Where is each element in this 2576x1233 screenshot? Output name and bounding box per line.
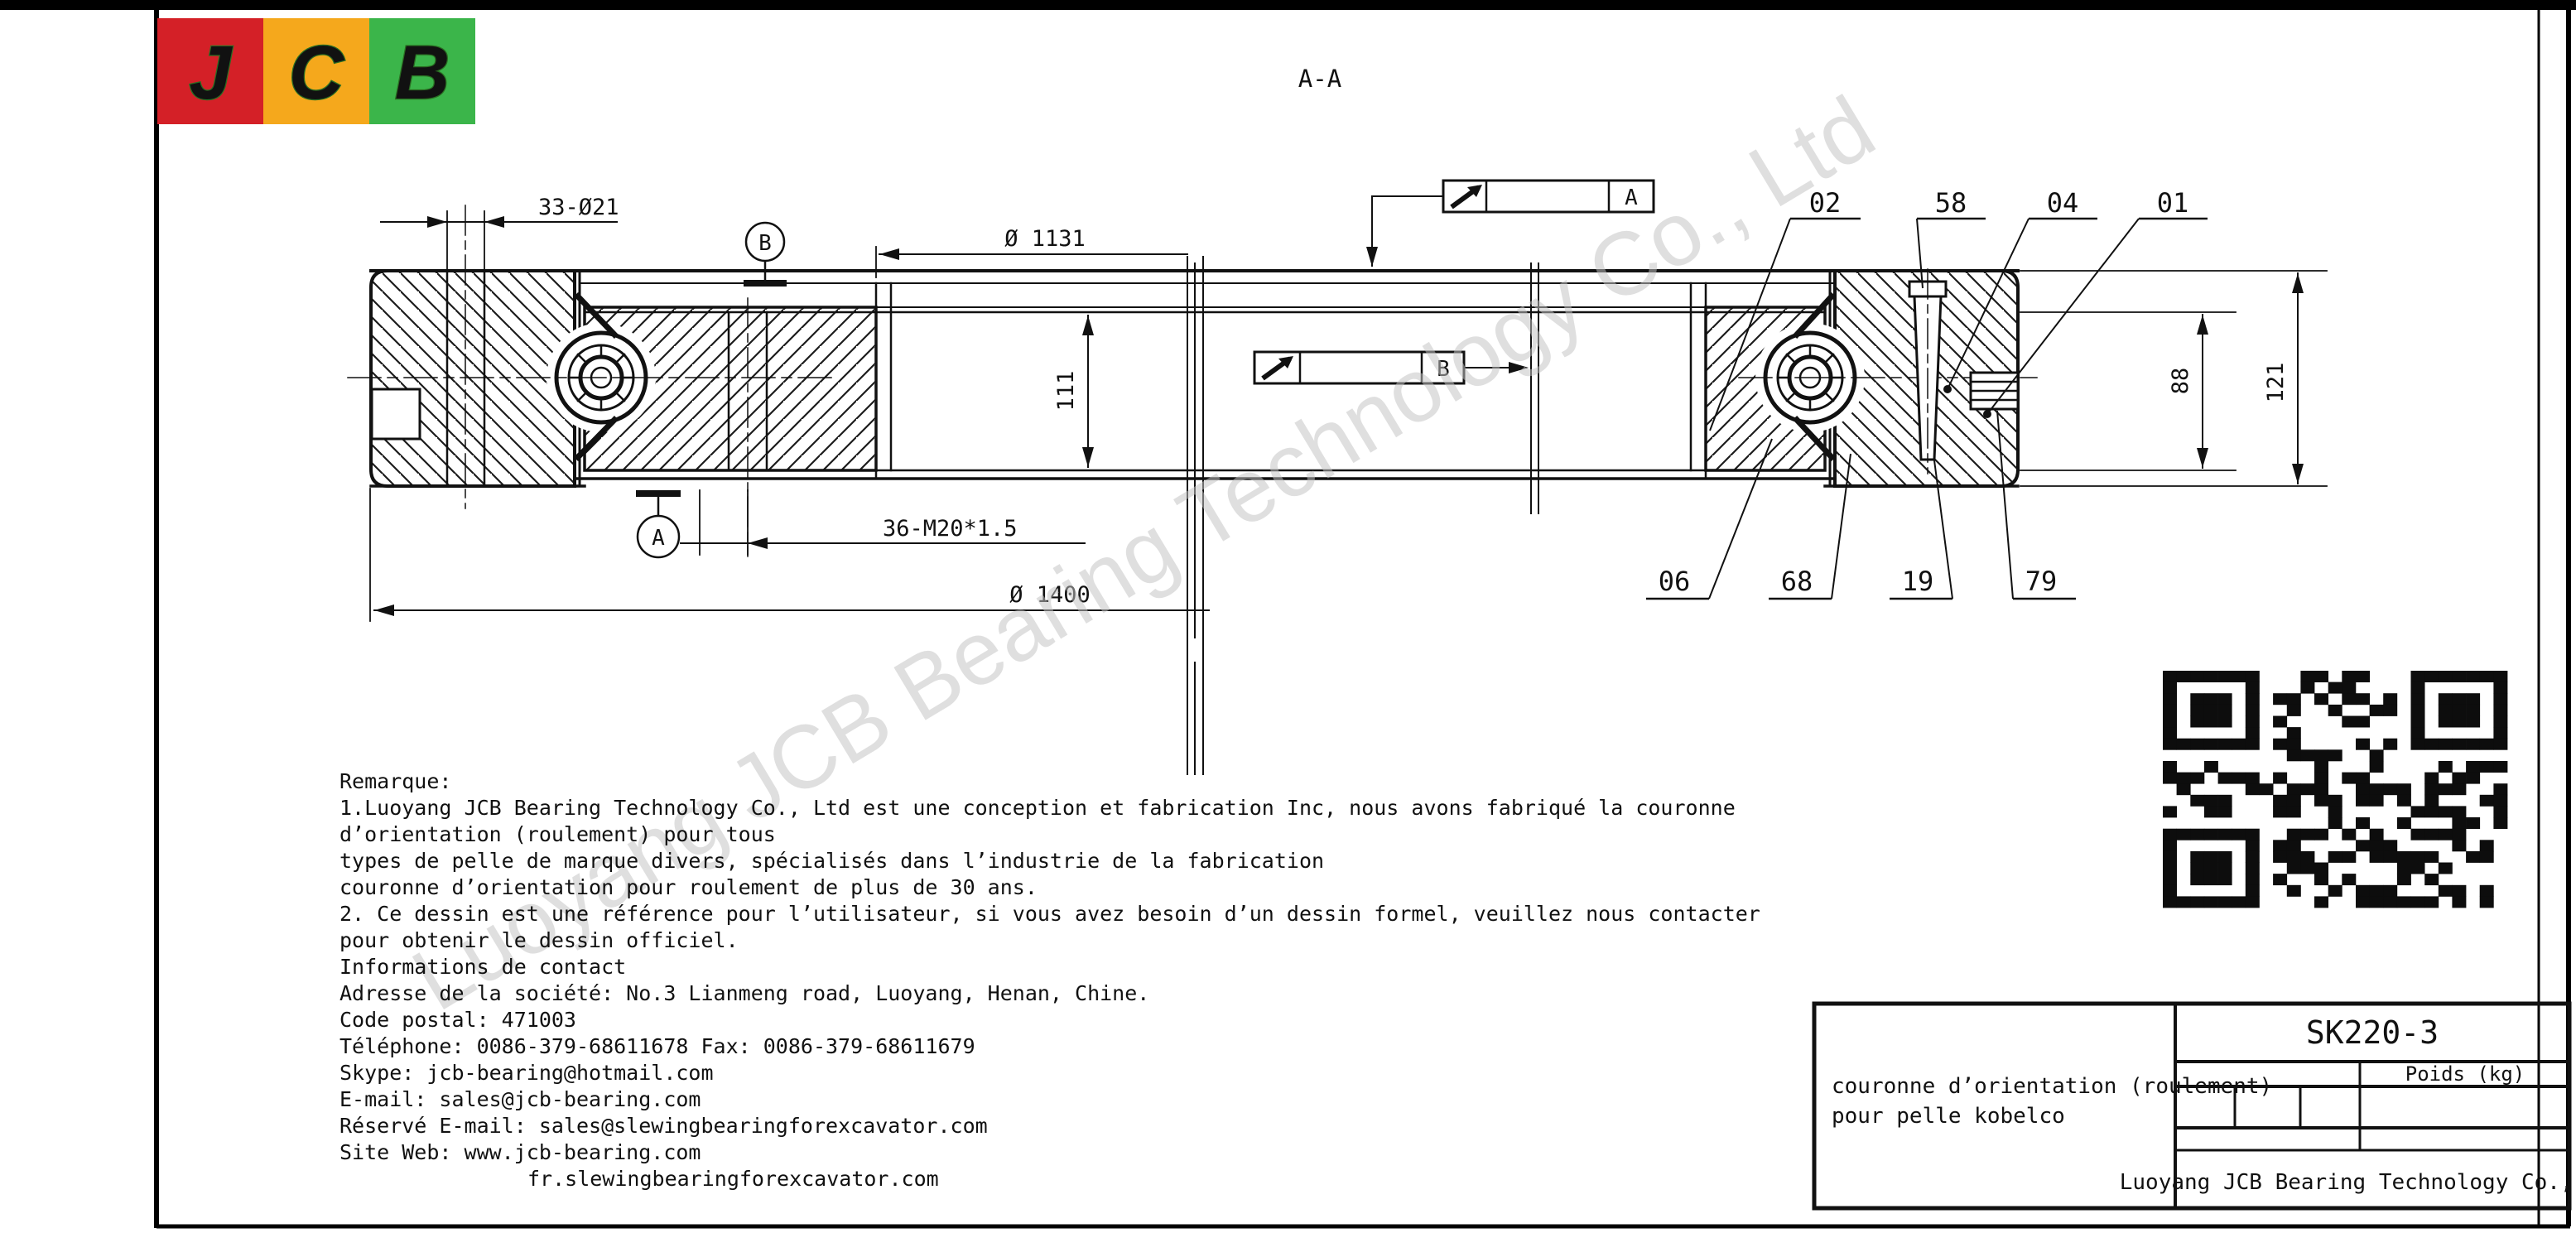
jcb-logo: J C B [157, 18, 475, 124]
note-line-10: Code postal: 471003 [339, 1008, 576, 1032]
callout-79: 79 [2025, 566, 2058, 597]
note-line-9: Adresse de la société: No.3 Lianmeng roa… [339, 981, 1149, 1005]
callout-68: 68 [1781, 566, 1813, 597]
callout-01: 01 [2157, 187, 2189, 219]
company-name: Luoyang JCB Bearing Technology Co., Ltd [2120, 1170, 2576, 1195]
note-line-14: Réservé E-mail: sales@slewingbearingfore… [339, 1114, 988, 1138]
callout-19: 19 [1902, 566, 1934, 597]
title-block: SK220-3 Poids (kg) couronne d’orientatio… [1814, 1004, 2576, 1208]
dim-label-111: 111 [1053, 371, 1079, 412]
note-line-4: types de pelle de marque divers, spécial… [339, 849, 1324, 873]
dim-inner-ring-height: 88 [2020, 312, 2236, 470]
border-top-bar [0, 0, 2576, 10]
note-line-7: pour obtenir le dessin officiel. [339, 928, 739, 952]
note-line-1: Remarque: [339, 769, 451, 793]
datum-b: B [744, 223, 787, 287]
datum-b-label: B [758, 231, 772, 256]
note-line-11: Téléphone: 0086-379-68611678 Fax: 0086-3… [339, 1034, 975, 1058]
logo-letter-c: C [289, 31, 345, 115]
left-outer-ring [371, 271, 575, 486]
dim-label-33-21: 33-Ø21 [538, 195, 619, 220]
notes-block: Remarque: 1.Luoyang JCB Bearing Technolo… [339, 769, 1760, 1191]
dim-bolt-pattern-top: 33-Ø21 [381, 195, 619, 273]
weight-label: Poids (kg) [2405, 1062, 2525, 1086]
note-line-6: 2. Ce dessin est une référence pour l’ut… [339, 902, 1760, 926]
dim-bore-height: 111 [1053, 315, 1094, 467]
qr-code [2163, 671, 2507, 908]
dim-label-121: 121 [2263, 363, 2289, 403]
note-line-15: Site Web: www.jcb-bearing.com [339, 1140, 701, 1164]
note-line-3: d’orientation (roulement) pour tous [339, 822, 776, 846]
dim-label-36-m20: 36-M20*1.5 [883, 516, 1018, 542]
section-label: A-A [1298, 65, 1341, 93]
datum-a: A [636, 490, 681, 557]
part-number: SK220-3 [2306, 1014, 2439, 1051]
callout-58: 58 [1935, 187, 1967, 219]
callout-04: 04 [2047, 187, 2079, 219]
note-line-8: Informations de contact [339, 955, 626, 979]
key-slot [372, 389, 420, 439]
note-line-5: couronne d’orientation pour roulement de… [339, 875, 1038, 899]
dim-label-1131: Ø 1131 [1004, 226, 1086, 252]
note-line-2: 1.Luoyang JCB Bearing Technology Co., Lt… [339, 796, 1736, 820]
part-description-line2: pour pelle kobelco [1832, 1104, 2065, 1129]
dim-bolt-pattern-bottom: 36-M20*1.5 [681, 490, 1085, 555]
logo-letter-j: J [189, 31, 233, 115]
note-line-16: fr.slewingbearingforexcavator.com [527, 1167, 939, 1191]
part-description-line1: couronne d’orientation (roulement) [1832, 1074, 2272, 1099]
callout-06: 06 [1659, 566, 1691, 597]
logo-letter-b: B [395, 31, 450, 115]
grease-fitting [1971, 373, 2018, 409]
note-line-12: Skype: jcb-bearing@hotmail.com [339, 1061, 714, 1085]
datum-a-label: A [652, 526, 665, 551]
note-line-13: E-mail: sales@jcb-bearing.com [339, 1087, 701, 1111]
drawing-sheet: J C B A-A [0, 0, 2576, 1233]
dim-label-88: 88 [2168, 368, 2193, 395]
